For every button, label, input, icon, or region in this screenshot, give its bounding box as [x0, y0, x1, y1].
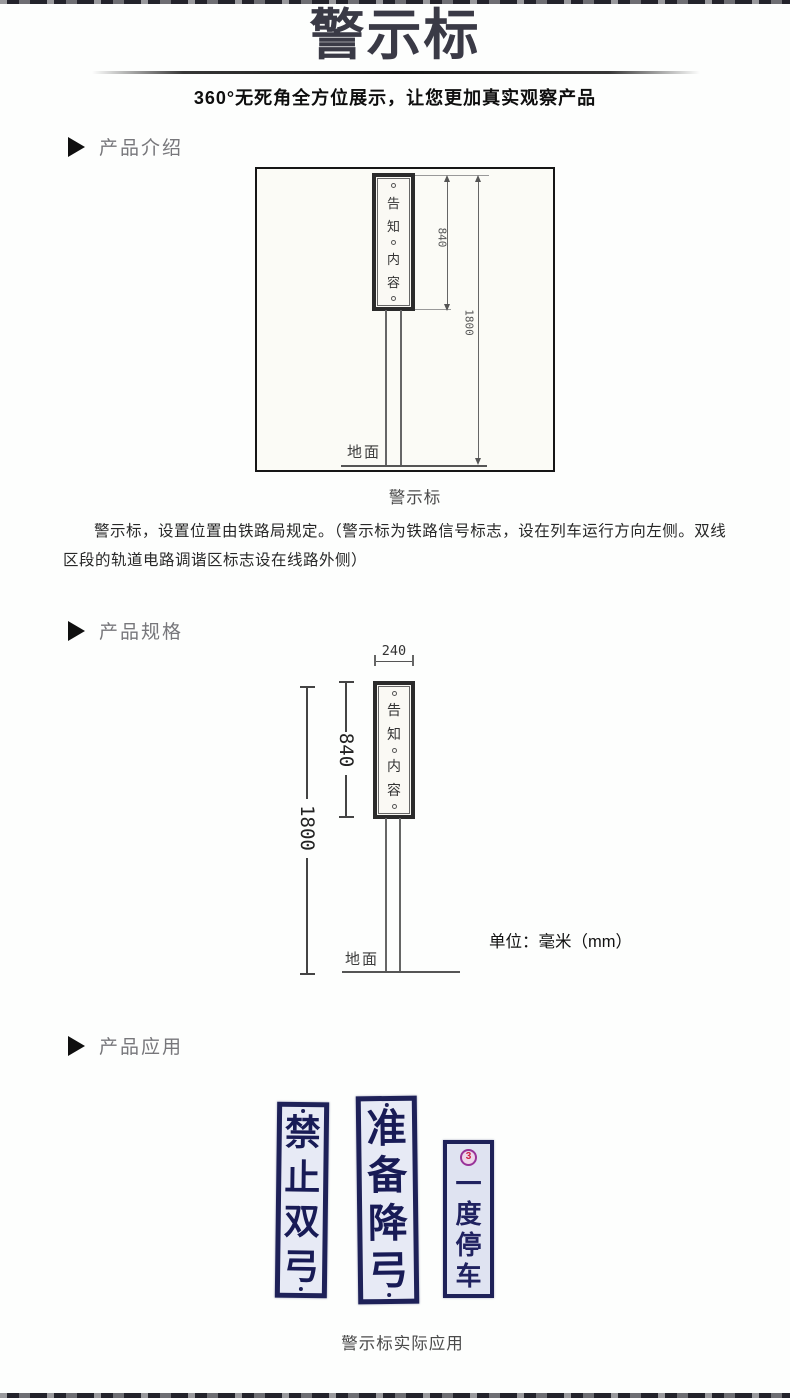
mount-hole-dot: [384, 1103, 388, 1107]
arrowhead-icon: [475, 175, 481, 182]
bottom-cropped-strip: [0, 1393, 790, 1398]
sign-char: 双: [283, 1204, 319, 1240]
separator-dot: [391, 183, 396, 188]
sign-char: 车: [455, 1263, 481, 1289]
app-sign-jinzhishuanggong: 禁 止 双 弓: [275, 1102, 329, 1299]
section-heading-spec: 产品规格: [68, 617, 183, 644]
sign-char: 备: [367, 1156, 407, 1196]
dimension-cap: [300, 973, 315, 975]
plate-char: 容: [387, 272, 400, 291]
sign-pole: [385, 310, 402, 466]
separator-dot: [392, 748, 397, 753]
dimension-cap: [300, 686, 315, 688]
intro-diagram: 告 知 内 容 地面 840 1800: [255, 167, 555, 472]
plate-char: 内: [387, 756, 401, 776]
section-heading-intro: 产品介绍: [68, 133, 183, 160]
dimension-value-840: 840: [436, 223, 449, 253]
sign-plate-text: 告 知 内 容: [378, 686, 410, 814]
sign-plate-text: 告 知 内 容: [377, 178, 410, 306]
sign-plate: 告 知 内 容: [373, 681, 415, 819]
plate-char: 告: [387, 193, 400, 212]
sign-char: 一: [455, 1171, 481, 1197]
ground-label: 地面: [347, 441, 381, 462]
plate-char: 知: [387, 724, 401, 744]
ground-label: 地面: [345, 948, 379, 969]
mount-hole-dot: [387, 1293, 391, 1297]
separator-dot: [392, 804, 397, 809]
product-detail-page: 警示标 360°无死角全方位展示，让您更加真实观察产品 产品介绍 告 知 内 容…: [0, 0, 790, 1398]
dimension-cap: [339, 681, 354, 683]
arrowhead-icon: [444, 175, 450, 182]
page-title: 警示标: [0, 2, 790, 68]
sign-char: 弓: [368, 1251, 408, 1291]
dimension-line-1800: [306, 687, 308, 799]
separator-dot: [391, 240, 396, 245]
intro-description: 警示标，设置位置由铁路局规定。（警示标为铁路信号标志，设在列车运行方向左侧。双线…: [63, 517, 729, 575]
mount-hole-dot: [301, 1109, 305, 1113]
arrowhead-icon: [444, 304, 450, 311]
plate-char: 告: [387, 700, 401, 720]
dimension-line-840: [345, 775, 347, 818]
sign-char: 停: [455, 1232, 481, 1258]
section-heading-app: 产品应用: [68, 1032, 183, 1059]
sign-char: 降: [368, 1204, 408, 1244]
dimension-value-1800: 1800: [296, 802, 318, 854]
triangle-marker-icon: [68, 1036, 85, 1056]
section-heading-label: 产品应用: [99, 1032, 183, 1059]
page-subtitle: 360°无死角全方位展示，让您更加真实观察产品: [0, 84, 790, 110]
plate-char: 知: [387, 216, 400, 235]
separator-dot: [391, 296, 396, 301]
ground-line: [342, 971, 460, 973]
triangle-marker-icon: [68, 621, 85, 641]
dimension-line-1800: [306, 858, 308, 975]
title-divider: [92, 71, 700, 74]
app-sign-yidutingche: 3 一 度 停 车: [443, 1140, 494, 1298]
arrowhead-icon: [475, 458, 481, 465]
sign-char: 度: [455, 1201, 481, 1227]
app-caption: 警示标实际应用: [0, 1330, 790, 1354]
app-sign-zhunbeijianggong: 准 备 降 弓: [356, 1096, 420, 1305]
sign-pole: [385, 818, 401, 973]
separator-dot: [392, 691, 397, 696]
circular-badge-icon: 3: [460, 1149, 477, 1166]
dimension-value-1800: 1800: [463, 306, 476, 340]
sign-char: 禁: [285, 1115, 321, 1151]
width-dimension-line: [375, 661, 413, 662]
section-heading-label: 产品规格: [99, 617, 183, 644]
dimension-value-240: 240: [372, 643, 416, 659]
sign-char: 弓: [283, 1248, 319, 1284]
dimension-tick: [374, 655, 376, 666]
mount-hole-dot: [299, 1287, 303, 1291]
plate-char: 内: [387, 249, 400, 268]
dimension-cap: [339, 816, 354, 818]
ground-line: [341, 465, 487, 467]
sign-char: 准: [366, 1108, 406, 1148]
dimension-value-840: 840: [335, 730, 357, 770]
unit-note: 单位：毫米（mm）: [489, 928, 632, 952]
triangle-marker-icon: [68, 137, 85, 157]
plate-char: 容: [387, 780, 401, 800]
sign-char: 止: [284, 1160, 320, 1196]
dimension-line-840: [345, 682, 347, 732]
dimension-line-1800: [478, 178, 479, 462]
sign-plate: 告 知 内 容: [372, 173, 415, 311]
intro-diagram-caption: 警示标: [255, 484, 575, 508]
section-heading-label: 产品介绍: [99, 133, 183, 160]
dimension-tick: [412, 655, 414, 666]
